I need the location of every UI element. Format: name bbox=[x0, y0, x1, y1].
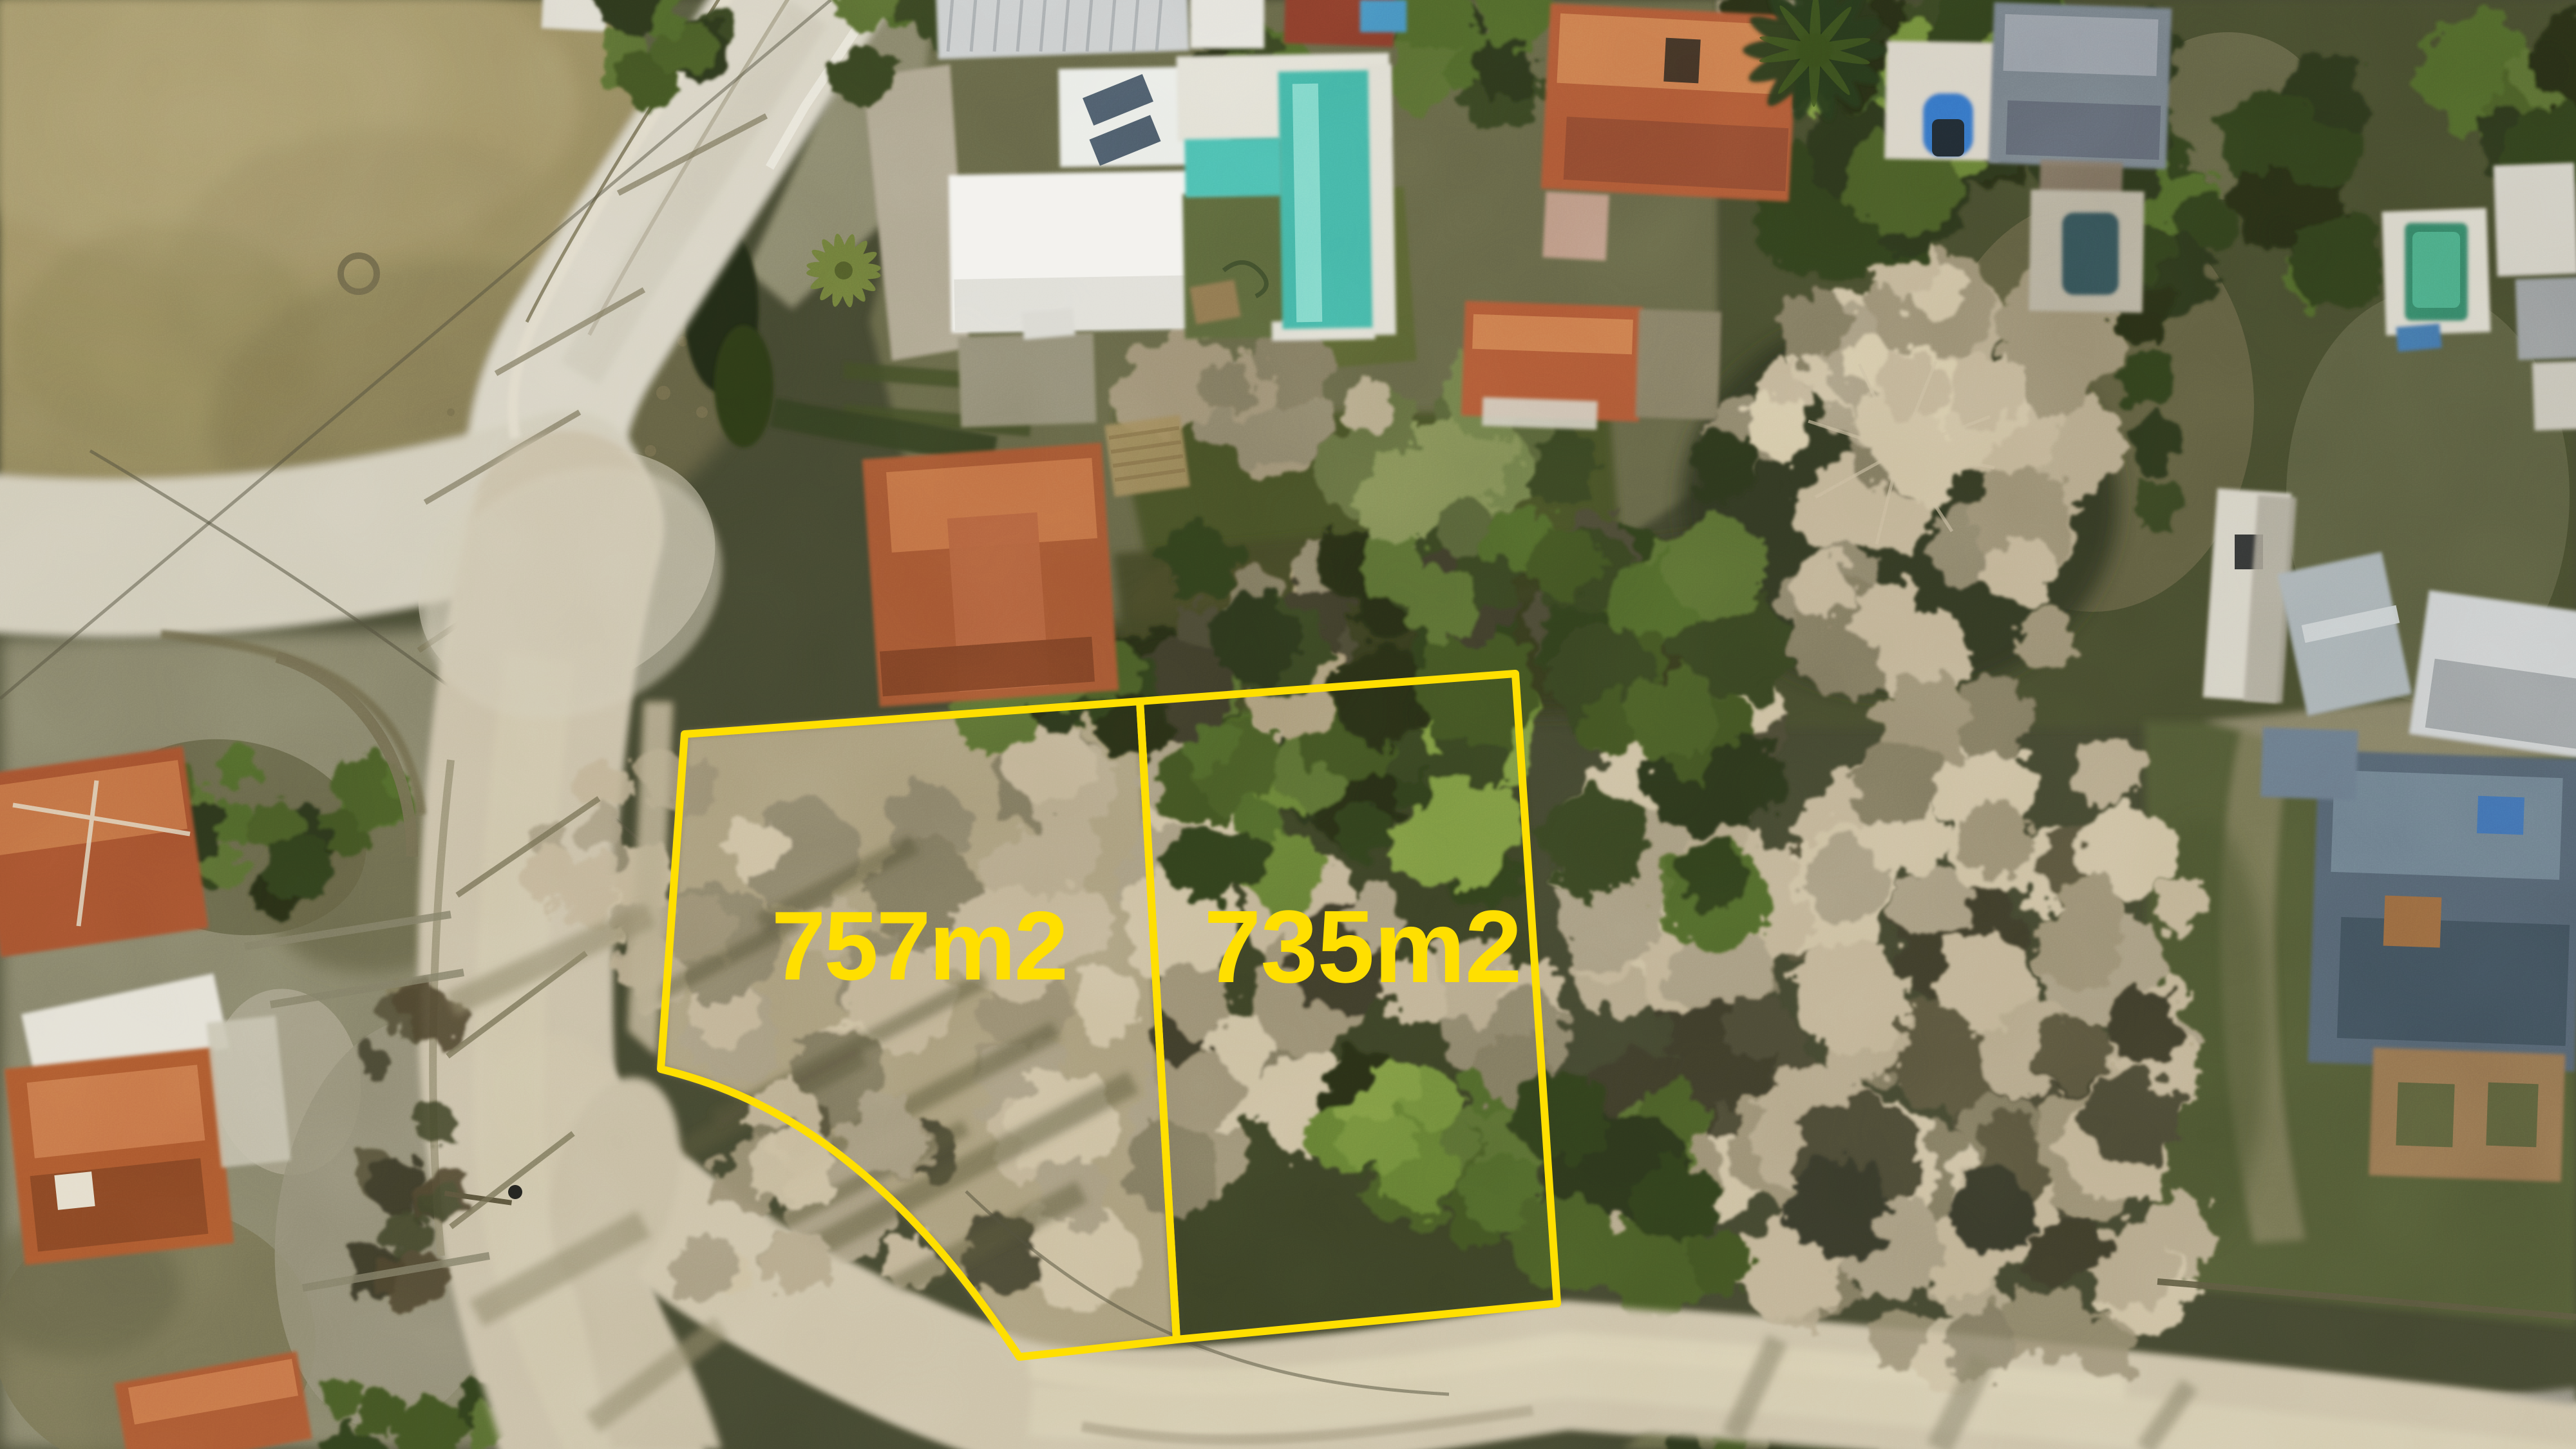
svg-text:735m2: 735m2 bbox=[1204, 889, 1521, 1004]
svg-text:757m2: 757m2 bbox=[772, 891, 1066, 1001]
